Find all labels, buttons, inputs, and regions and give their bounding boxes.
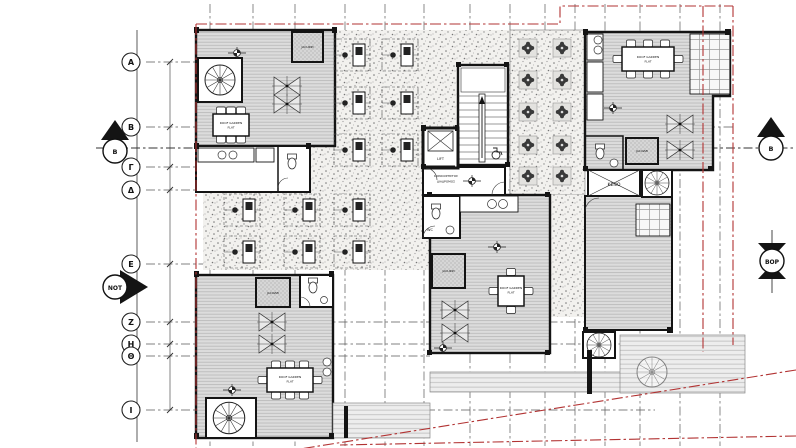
spiral-stair-icon — [205, 65, 235, 95]
void-label: ΚΕΝΟ — [608, 182, 621, 188]
elevator: LIFT — [423, 128, 458, 168]
south-arrow-marker: ΝΟΤ — [103, 270, 148, 304]
spiral-stair-icon-light — [637, 357, 667, 387]
svg-text:ΝΟΤ: ΝΟΤ — [108, 285, 123, 292]
spiral-stair-icon — [213, 402, 245, 434]
stipple-zone-lower — [203, 192, 430, 270]
svg-text:Ι: Ι — [130, 406, 133, 415]
svg-text:FLAT: FLAT — [286, 380, 293, 384]
toilet-icon — [432, 204, 441, 219]
svg-text:JACUZZI: JACUZZI — [300, 45, 313, 49]
umbrella-icon — [257, 334, 287, 354]
svg-text:Β: Β — [128, 123, 134, 132]
svg-text:JACUZZI: JACUZZI — [635, 149, 648, 153]
svg-text:JACUZZI: JACUZZI — [441, 269, 454, 273]
jacuzzi-top-right: JACUZZI — [626, 138, 658, 164]
svg-text:Β: Β — [113, 148, 118, 156]
jacuzzi-top-left: JACUZZI — [292, 32, 323, 62]
lift-label: LIFT — [437, 157, 445, 161]
corridor-label-2: ΔΙΑΔΡΟΜΟΣ — [437, 180, 455, 184]
wc-label: WC — [427, 228, 433, 232]
floor-plan-drawing: LIFT JACUZZI ROOF GARDEN FLAT — [0, 0, 796, 448]
umbrella-icon — [440, 323, 470, 343]
toilet-icon — [288, 154, 297, 169]
svg-text:ROOF GARDEN: ROOF GARDEN — [637, 55, 659, 59]
umbrella-icon — [665, 114, 695, 134]
svg-text:Θ: Θ — [128, 352, 135, 361]
svg-text:ROOF GARDEN: ROOF GARDEN — [500, 286, 522, 290]
north-arrow-marker: ΒΟΡ — [758, 230, 786, 293]
svg-text:Γ: Γ — [128, 163, 133, 172]
trellis-square — [636, 204, 670, 236]
stipple-zone-right — [550, 195, 585, 317]
umbrella-icon — [440, 300, 470, 320]
svg-text:FLAT: FLAT — [227, 126, 234, 130]
umbrella-icon — [272, 94, 302, 114]
svg-text:Α: Α — [128, 58, 135, 67]
svg-text:ROOF GARDEN: ROOF GARDEN — [220, 121, 242, 125]
svg-text:Ε: Ε — [128, 260, 133, 269]
umbrella-icon — [257, 312, 287, 332]
floor-plan-page: LIFT JACUZZI ROOF GARDEN FLAT — [0, 0, 796, 448]
svg-text:ROOF GARDEN: ROOF GARDEN — [279, 375, 301, 379]
svg-text:JACUZZI: JACUZZI — [266, 291, 279, 295]
toilet-icon — [596, 144, 605, 159]
svg-text:ΒΟΡ: ΒΟΡ — [765, 259, 780, 266]
left-grid-rail — [134, 30, 173, 442]
toilet-icon — [309, 278, 318, 293]
svg-text:FLAT: FLAT — [507, 291, 514, 295]
slat-band-bottom — [430, 372, 630, 392]
umbrella-icon — [665, 140, 695, 160]
svg-text:Β: Β — [769, 145, 774, 153]
pergola-top-right — [690, 34, 730, 94]
umbrella-icon — [272, 76, 302, 96]
svg-text:FLAT: FLAT — [644, 60, 651, 64]
dining-table-top-left: ROOF GARDEN FLAT — [213, 107, 249, 143]
svg-text:Ζ: Ζ — [128, 318, 134, 327]
section-marker-right: Β — [757, 117, 785, 160]
stipple-zone-mid2 — [310, 146, 335, 192]
jacuzzi-mid-right: JACUZZI — [432, 254, 465, 288]
jacuzzi-bottom-left: JACUZZI — [256, 278, 290, 307]
corridor-label-1: ΚΟΙΝΟΧΡΗΣΤΟΣ — [434, 174, 458, 178]
svg-text:Δ: Δ — [128, 186, 135, 195]
spiral-stair-icon — [645, 171, 669, 195]
